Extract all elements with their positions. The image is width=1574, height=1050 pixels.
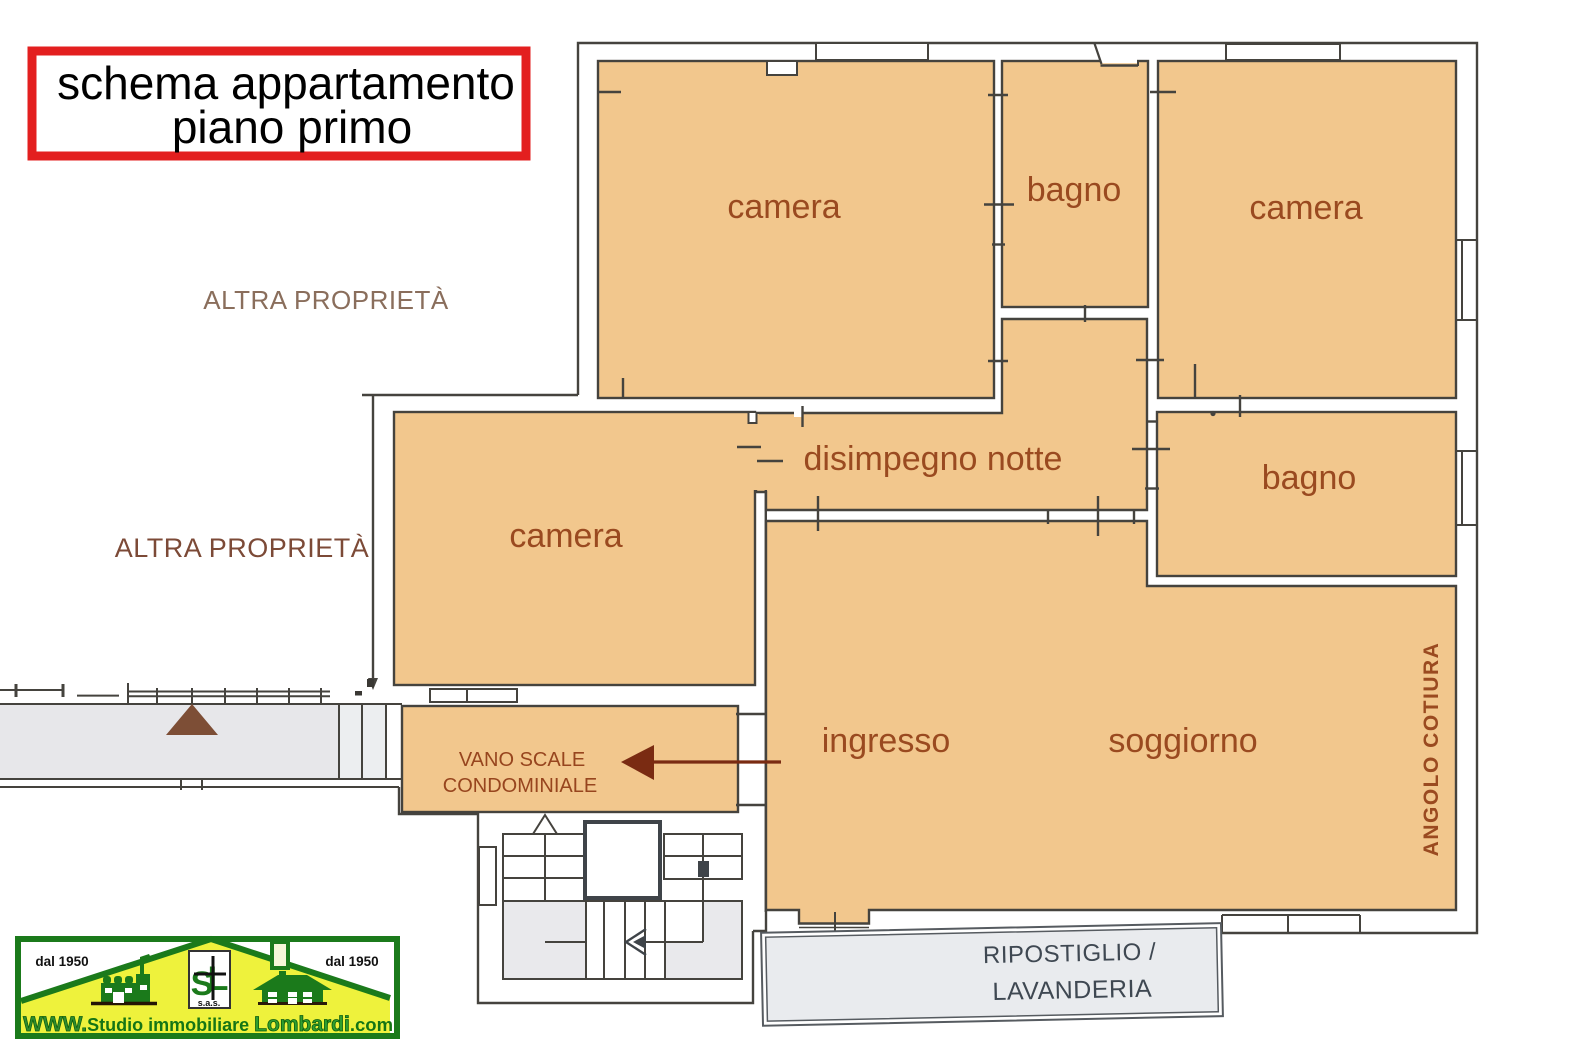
svg-text:L: L — [208, 960, 229, 998]
svg-text:s.a.s.: s.a.s. — [198, 998, 221, 1008]
svg-text:LAVANDERIA: LAVANDERIA — [992, 975, 1152, 1006]
svg-text:camera: camera — [509, 517, 622, 555]
svg-text:ALTRA PROPRIETÀ: ALTRA PROPRIETÀ — [115, 533, 370, 563]
svg-text:WWW.Studio immobiliare Lombard: WWW.Studio immobiliare Lombardi.com — [23, 1013, 393, 1036]
svg-text:piano primo: piano primo — [172, 101, 412, 153]
svg-text:ingresso: ingresso — [822, 722, 951, 760]
svg-text:ANGOLO COTIURA: ANGOLO COTIURA — [1420, 642, 1443, 857]
svg-text:disimpegno notte: disimpegno notte — [804, 440, 1063, 478]
svg-text:camera: camera — [727, 188, 840, 226]
svg-text:bagno: bagno — [1262, 459, 1357, 497]
svg-text:RIPOSTIGLIO /: RIPOSTIGLIO / — [983, 939, 1157, 970]
svg-text:CONDOMINIALE: CONDOMINIALE — [443, 775, 597, 797]
svg-text:bagno: bagno — [1027, 171, 1122, 209]
svg-text:camera: camera — [1249, 189, 1362, 227]
svg-text:VANO SCALE: VANO SCALE — [459, 749, 585, 771]
svg-text:soggiorno: soggiorno — [1108, 722, 1257, 760]
svg-text:ALTRA PROPRIETÀ: ALTRA PROPRIETÀ — [203, 285, 449, 315]
svg-text:dal 1950: dal 1950 — [35, 954, 88, 969]
svg-text:dal 1950: dal 1950 — [325, 954, 378, 969]
